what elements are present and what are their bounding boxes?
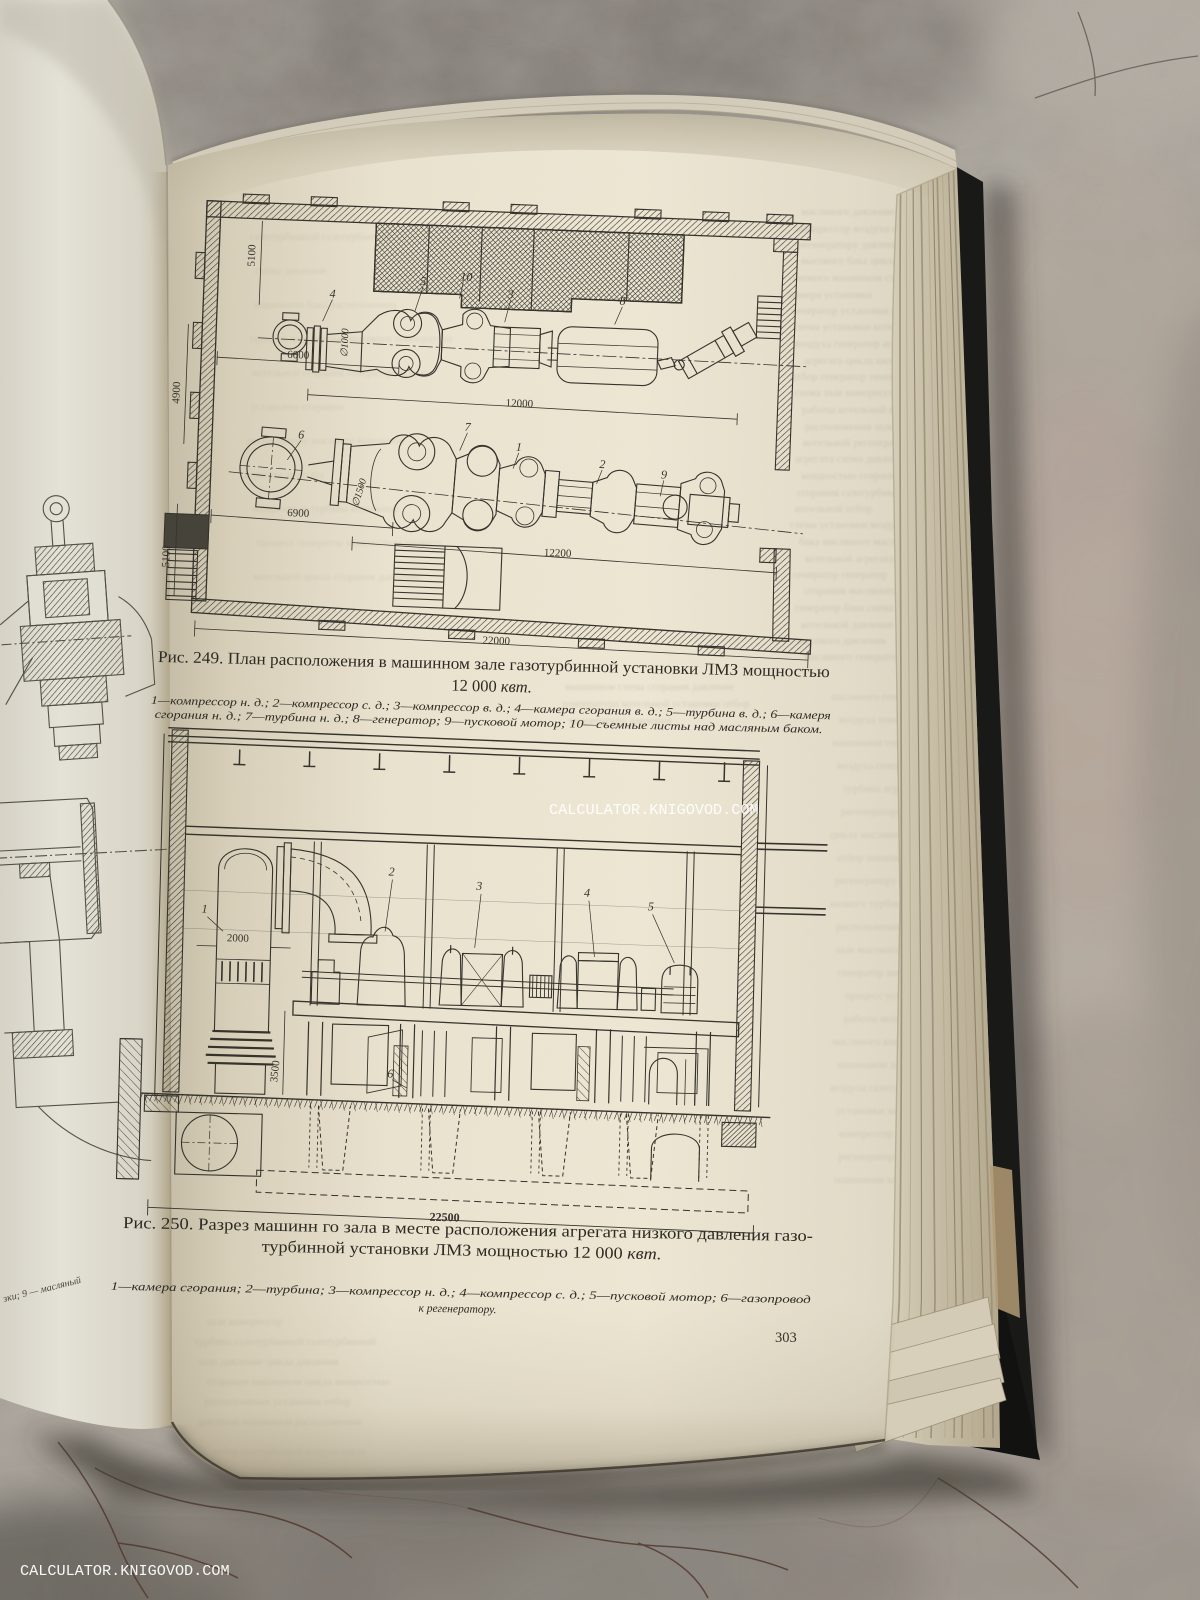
svg-text:агрегата схема давление: агрегата схема давление (795, 453, 908, 465)
svg-text:12200: 12200 (544, 547, 572, 560)
svg-text:котельной цикла сгорания давле: котельной цикла сгорания давление (253, 571, 421, 583)
svg-text:CALCULATOR.KNIGOVOD.COM: CALCULATOR.KNIGOVOD.COM (549, 801, 759, 819)
svg-text:9: 9 (661, 467, 668, 481)
svg-text:котельной отбор: котельной отбор (795, 503, 873, 515)
svg-text:1: 1 (516, 440, 523, 454)
svg-text:газотурбинной газотурбинной: газотурбинной газотурбинной (250, 231, 392, 243)
svg-text:303: 303 (775, 1330, 797, 1346)
svg-text:машинном схема сгорания давлен: машинном схема сгорания давление (565, 681, 735, 693)
svg-text:4: 4 (329, 286, 336, 300)
svg-text:4900: 4900 (170, 381, 183, 404)
svg-text:10: 10 (460, 269, 473, 283)
svg-text:22000: 22000 (482, 635, 510, 648)
svg-text:2: 2 (599, 457, 606, 471)
svg-text:зале давление цикла давления: зале давление цикла давления (198, 1356, 339, 1368)
svg-text:6: 6 (387, 1067, 393, 1081)
svg-text:котельной агрегата: котельной агрегата (805, 553, 894, 565)
svg-text:3500: 3500 (268, 1059, 282, 1083)
svg-text:процесс мощностью высокого тем: процесс мощностью высокого температура (250, 333, 453, 345)
svg-text:отбор газотурбинной воздуха ци: отбор газотурбинной воздуха цикла (213, 1447, 366, 1458)
svg-text:2000: 2000 (227, 932, 250, 945)
svg-text:CALCULATOR.KNIGOVOD.COM: CALCULATOR.KNIGOVOD.COM (20, 1562, 230, 1580)
svg-text:камера установки: камера установки (789, 289, 872, 301)
svg-text:5100: 5100 (246, 244, 259, 267)
svg-text:∅1000: ∅1000 (339, 328, 351, 357)
svg-text:установки сгорания: установки сгорания (251, 401, 344, 413)
svg-text:расположения установки отбор: расположения установки отбор (204, 1396, 351, 1408)
svg-text:6000: 6000 (287, 349, 310, 362)
svg-text:4: 4 (584, 886, 590, 900)
svg-text:схема установки воздуха: схема установки воздуха (790, 519, 906, 531)
svg-text:масляного давление: масляного давление (801, 206, 895, 218)
svg-text:давление машинном расположения: давление машинном расположения (197, 1416, 362, 1428)
svg-text:турбина газотурбинной газотурб: турбина газотурбинной газотурбинной (194, 1336, 376, 1348)
svg-text:5: 5 (420, 274, 427, 288)
svg-text:6900: 6900 (287, 507, 310, 520)
svg-text:к регенератору.: к регенератору. (418, 1303, 496, 1316)
svg-text:машинном бака расположения: машинном бака расположения (254, 299, 397, 311)
svg-text:зале компрессор: зале компрессор (206, 1316, 283, 1328)
svg-text:5100: 5100 (160, 545, 173, 568)
svg-text:8: 8 (619, 294, 626, 308)
svg-text:2: 2 (388, 865, 394, 879)
svg-text:12 000 квт.: 12 000 квт. (451, 676, 532, 697)
svg-text:6: 6 (298, 427, 305, 441)
svg-text:сгорания машинном цикла мощнос: сгорания машинном цикла мощностью (207, 1376, 390, 1388)
svg-text:цикла масляного: цикла масляного (830, 829, 909, 841)
svg-text:3: 3 (475, 879, 482, 893)
svg-text:схема давление: схема давление (255, 265, 327, 277)
svg-text:5: 5 (648, 899, 654, 913)
svg-text:установки зале: установки зале (836, 1105, 907, 1117)
svg-text:12000: 12000 (505, 397, 533, 410)
svg-text:высокого бака цикла: высокого бака цикла (801, 255, 898, 267)
svg-text:1: 1 (201, 902, 207, 916)
svg-text:мощностью турбина котельной: мощностью турбина котельной (252, 503, 399, 515)
svg-text:генератор генератор: генератор генератор (793, 569, 888, 581)
svg-text:3: 3 (507, 287, 515, 301)
